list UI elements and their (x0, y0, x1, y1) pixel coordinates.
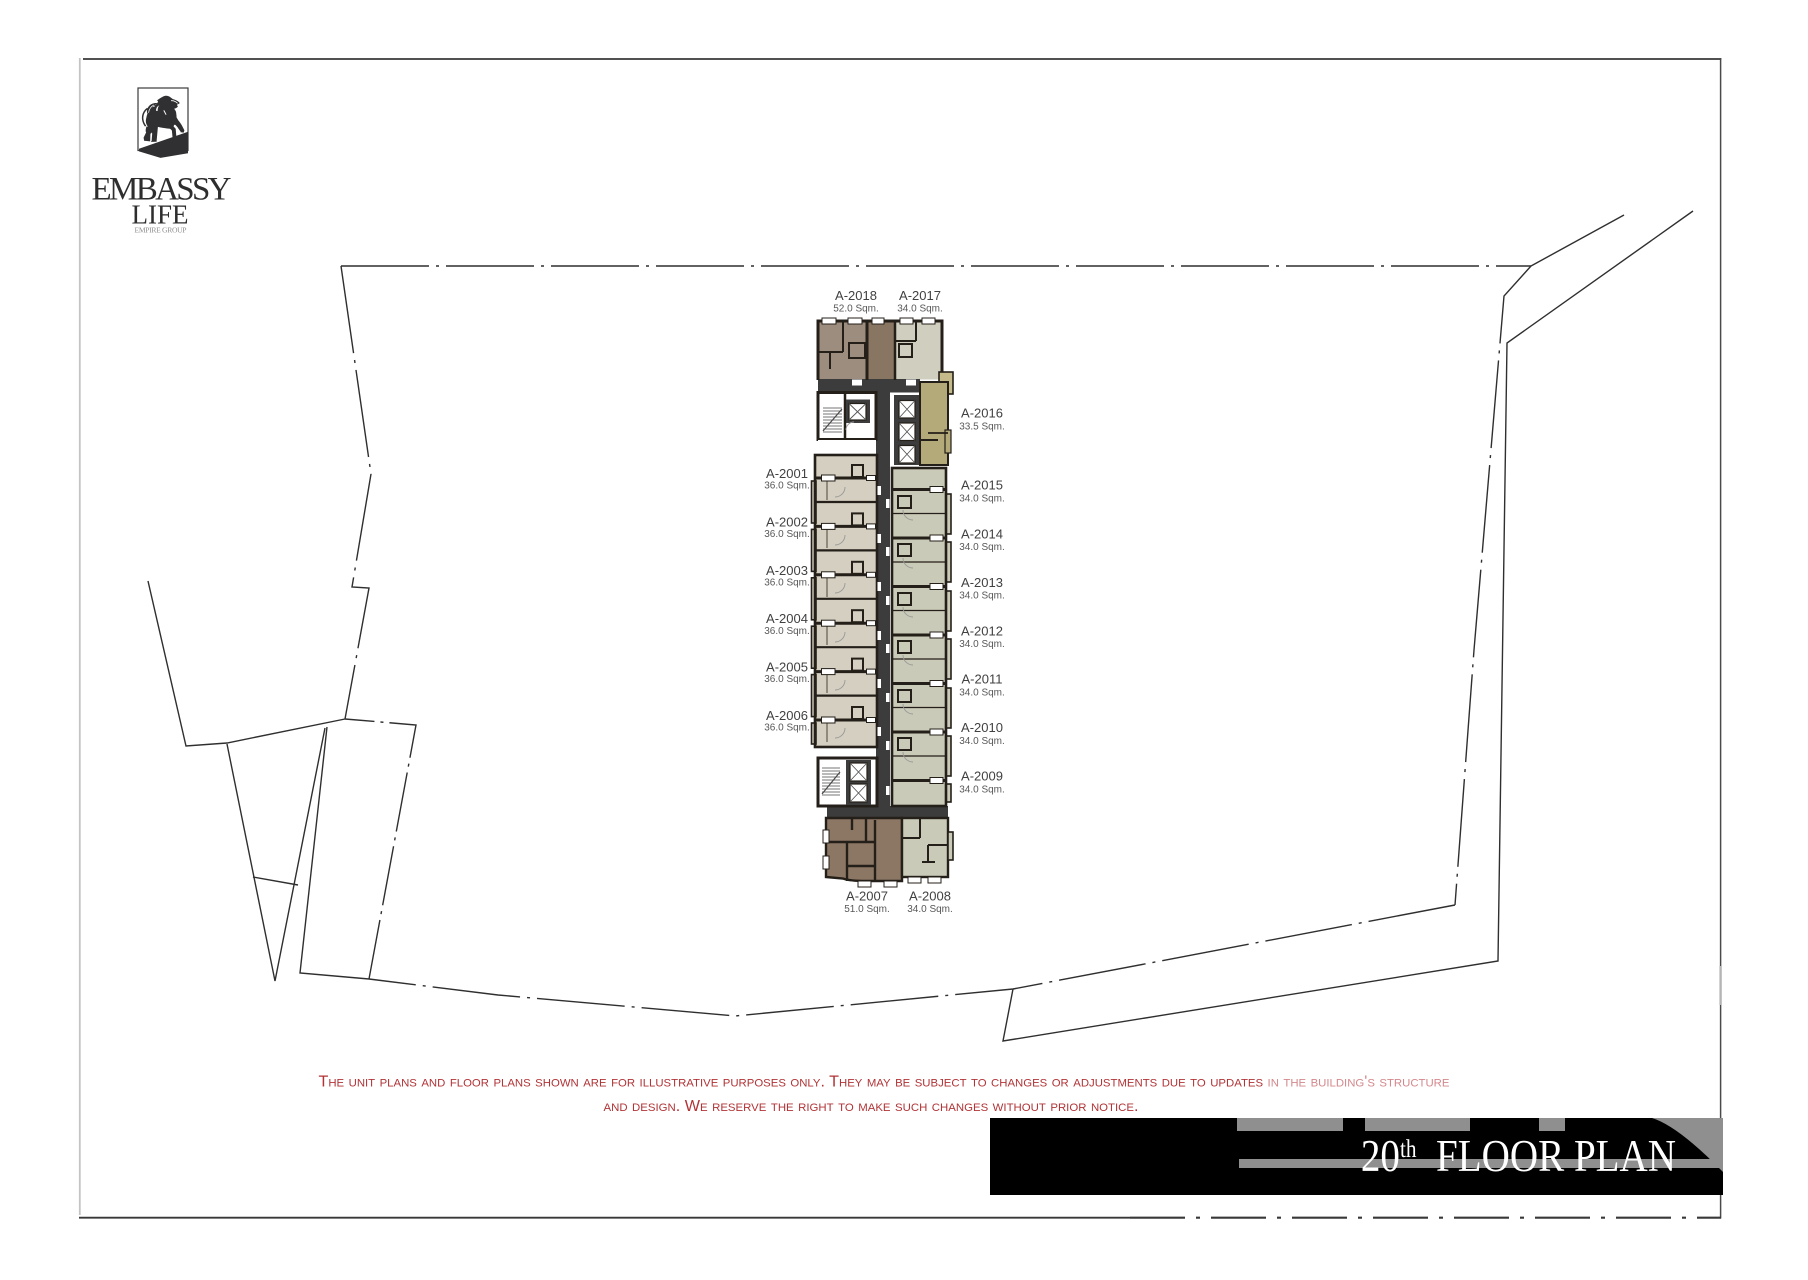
svg-text:34.0 Sqm.: 34.0 Sqm. (959, 494, 1005, 505)
svg-text:A-2011: A-2011 (962, 672, 1003, 687)
svg-text:A-2016: A-2016 (961, 406, 1003, 421)
svg-text:EMPIRE GROUP: EMPIRE GROUP (135, 226, 187, 235)
svg-text:The unit plans and floor plans: The unit plans and floor plans shown are… (319, 1073, 1450, 1090)
svg-text:A-2006: A-2006 (766, 708, 808, 723)
svg-text:52.0 Sqm.: 52.0 Sqm. (833, 304, 879, 315)
svg-text:A-2003: A-2003 (766, 563, 808, 578)
svg-text:A-2014: A-2014 (961, 526, 1003, 541)
svg-text:A-2004: A-2004 (766, 611, 808, 626)
svg-text:34.0 Sqm.: 34.0 Sqm. (959, 542, 1005, 553)
svg-text:36.0 Sqm.: 36.0 Sqm. (764, 626, 810, 637)
svg-text:36.0 Sqm.: 36.0 Sqm. (764, 723, 810, 734)
svg-text:A-2008: A-2008 (909, 889, 951, 904)
svg-text:34.0 Sqm.: 34.0 Sqm. (907, 904, 953, 915)
svg-text:51.0 Sqm.: 51.0 Sqm. (844, 904, 890, 915)
svg-text:A-2015: A-2015 (961, 478, 1003, 493)
svg-text:A-2009: A-2009 (961, 769, 1003, 784)
svg-text:A-2013: A-2013 (961, 575, 1003, 590)
svg-text:34.0 Sqm.: 34.0 Sqm. (959, 736, 1005, 747)
svg-text:34.0 Sqm.: 34.0 Sqm. (959, 591, 1005, 602)
svg-text:A-2017: A-2017 (899, 288, 941, 303)
svg-text:and design. We reserve the rig: and design. We reserve the right to make… (604, 1098, 1139, 1115)
svg-text:36.0 Sqm.: 36.0 Sqm. (764, 481, 810, 492)
svg-text:A-2012: A-2012 (961, 623, 1003, 638)
svg-text:34.0 Sqm.: 34.0 Sqm. (959, 639, 1005, 650)
svg-text:34.0 Sqm.: 34.0 Sqm. (959, 785, 1005, 796)
svg-text:34.0 Sqm.: 34.0 Sqm. (959, 688, 1005, 699)
svg-text:36.0 Sqm.: 36.0 Sqm. (764, 577, 810, 588)
svg-text:34.0 Sqm.: 34.0 Sqm. (897, 304, 943, 315)
svg-text:A-2002: A-2002 (766, 514, 808, 529)
svg-text:A-2005: A-2005 (766, 660, 808, 675)
svg-text:A-2007: A-2007 (846, 889, 888, 904)
svg-text:36.0 Sqm.: 36.0 Sqm. (764, 529, 810, 540)
svg-text:33.5 Sqm.: 33.5 Sqm. (959, 422, 1005, 433)
svg-text:A-2001: A-2001 (766, 466, 808, 481)
svg-text:A-2010: A-2010 (961, 720, 1003, 735)
svg-text:A-2018: A-2018 (835, 288, 877, 303)
svg-text:36.0 Sqm.: 36.0 Sqm. (764, 674, 810, 685)
